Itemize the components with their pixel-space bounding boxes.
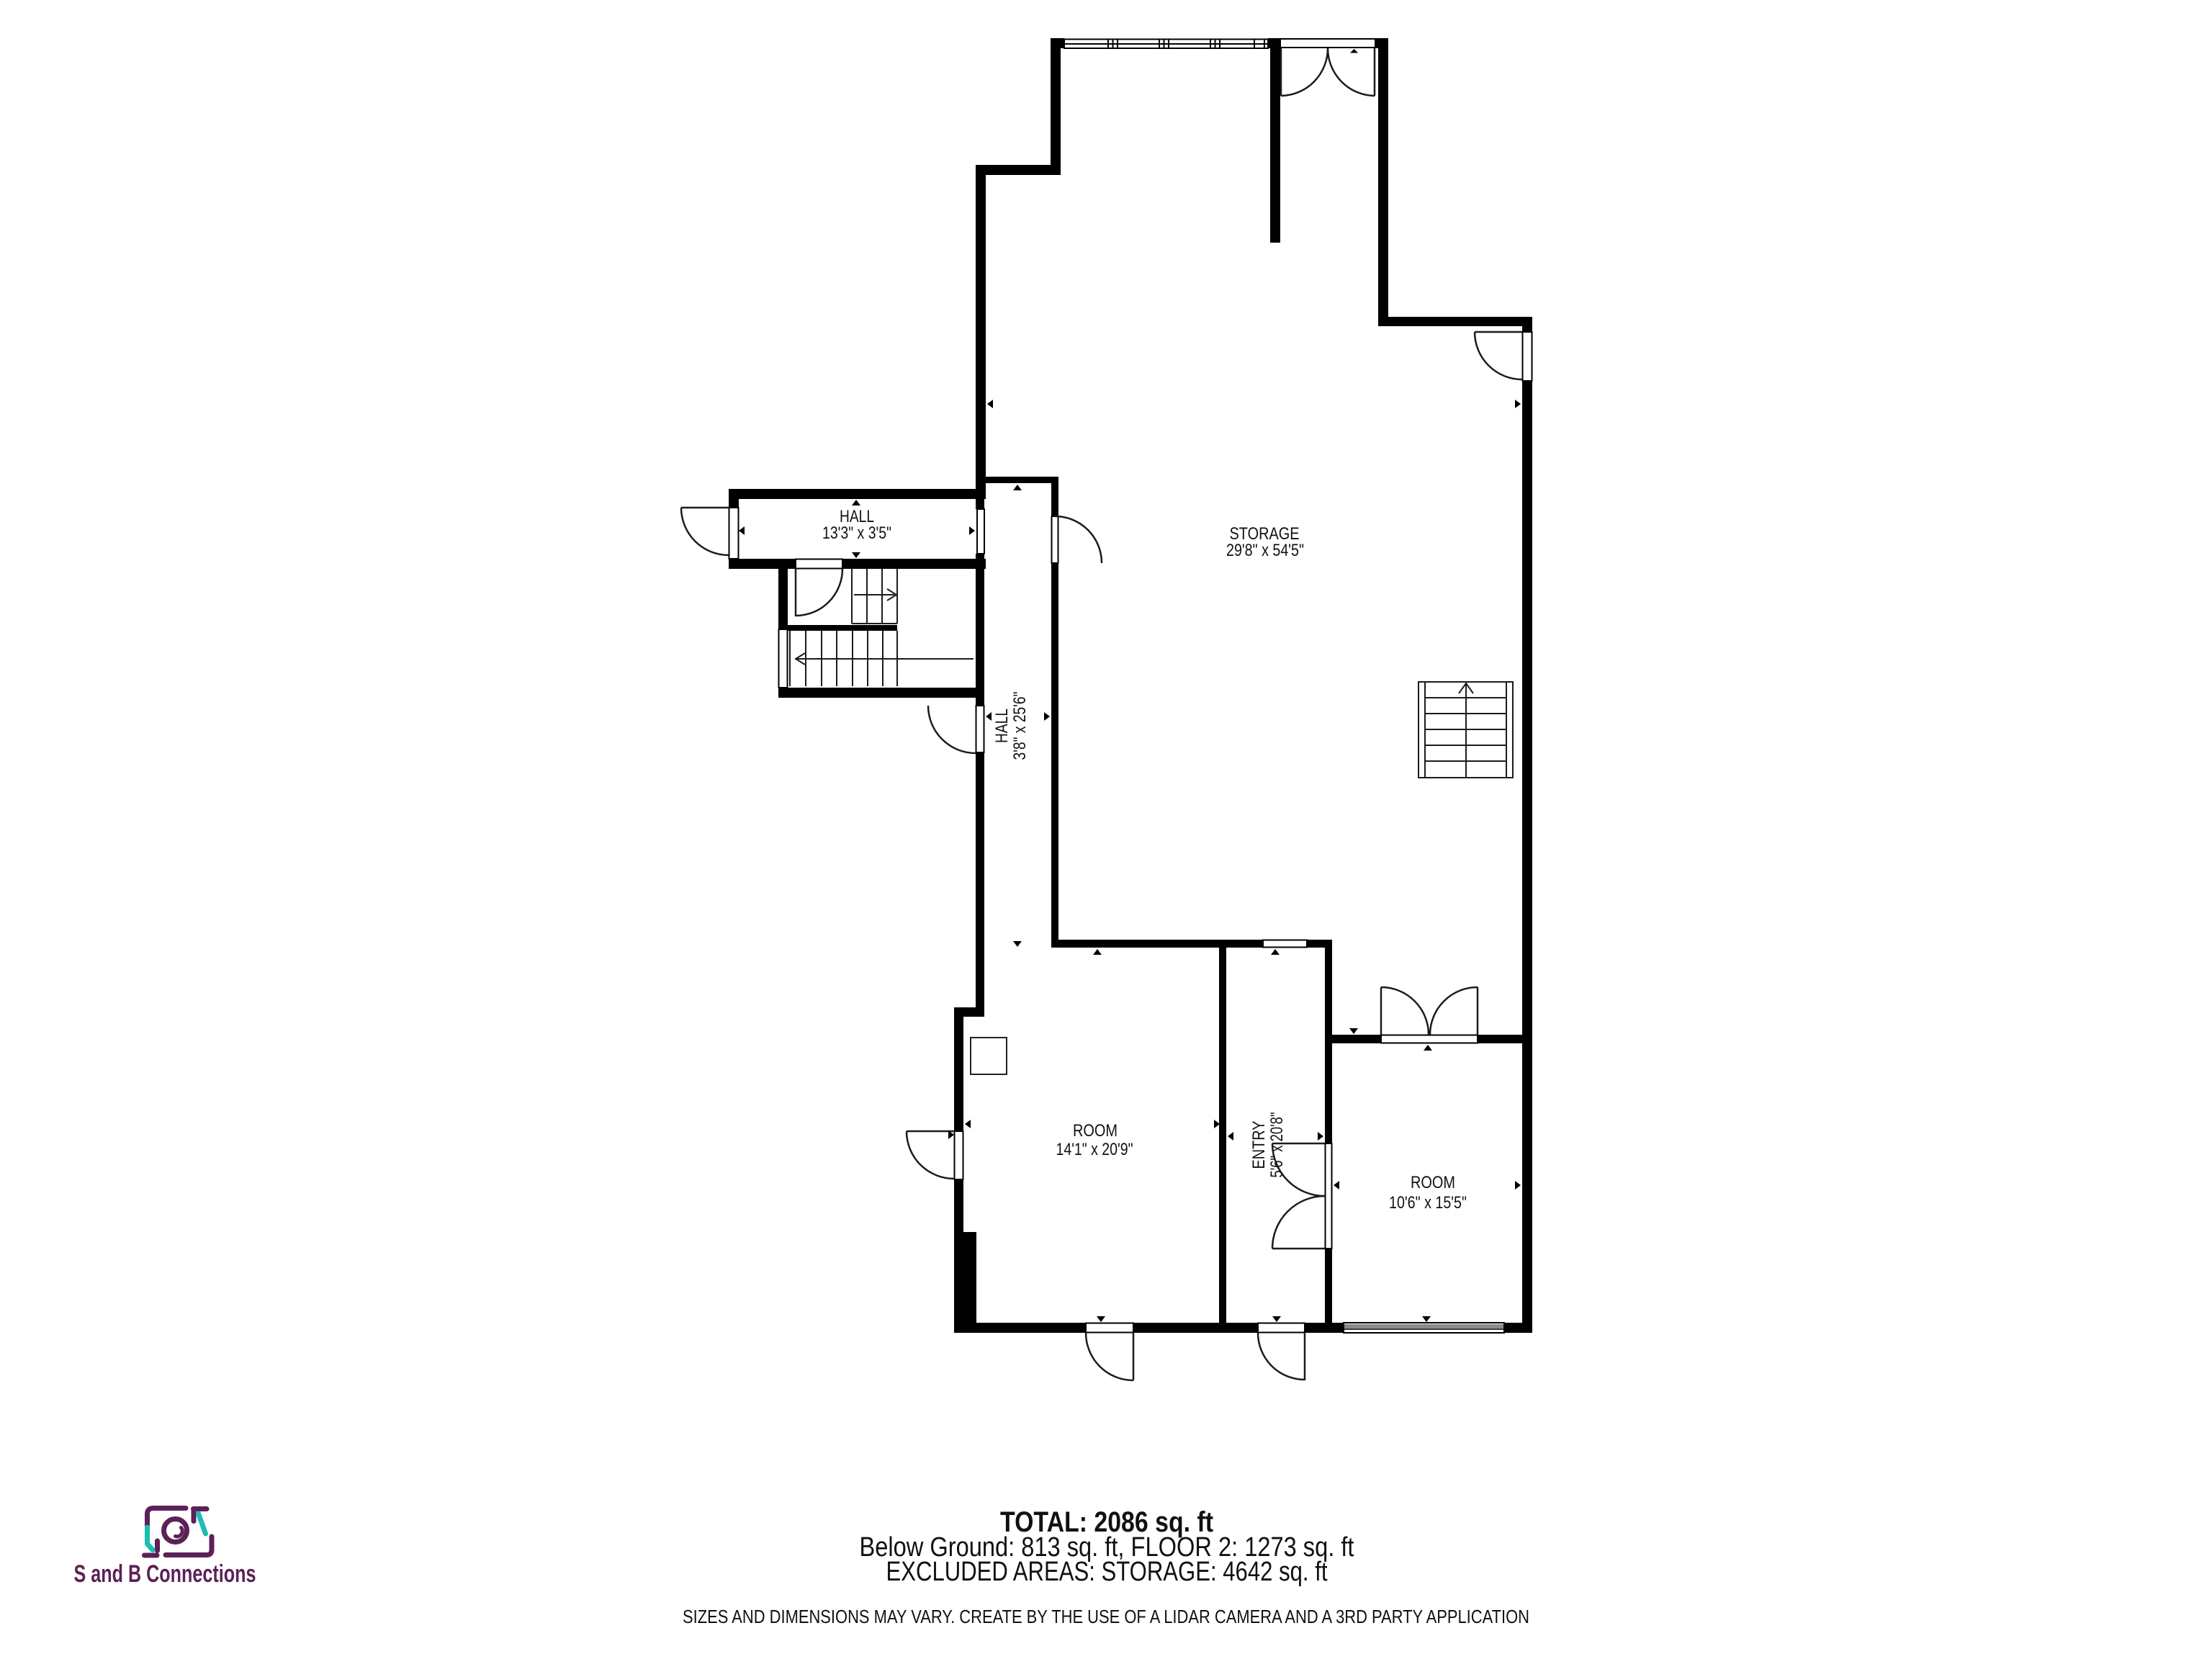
svg-text:EXCLUDED AREAS: STORAGE: 4642: EXCLUDED AREAS: STORAGE: 4642 sq. ft (886, 1557, 1328, 1587)
svg-text:14'1" x 20'9": 14'1" x 20'9" (1056, 1140, 1133, 1159)
svg-text:ROOM: ROOM (1073, 1121, 1118, 1141)
svg-text:5'6" x 20'8": 5'6" x 20'8" (1267, 1112, 1287, 1178)
svg-text:ROOM: ROOM (1411, 1173, 1455, 1192)
svg-text:29'8" x 54'5": 29'8" x 54'5" (1226, 541, 1304, 560)
svg-text:10'6" x 15'5": 10'6" x 15'5" (1389, 1193, 1467, 1213)
svg-text:ENTRY: ENTRY (1249, 1121, 1269, 1169)
svg-text:13'3" x 3'5": 13'3" x 3'5" (822, 523, 891, 543)
svg-text:SIZES AND DIMENSIONS MAY VARY.: SIZES AND DIMENSIONS MAY VARY. CREATE BY… (683, 1606, 1529, 1627)
svg-text:3'8" x 25'6": 3'8" x 25'6" (1010, 692, 1030, 760)
svg-text:HALL: HALL (992, 709, 1012, 743)
svg-text:S and B Connections: S and B Connections (74, 1560, 256, 1588)
